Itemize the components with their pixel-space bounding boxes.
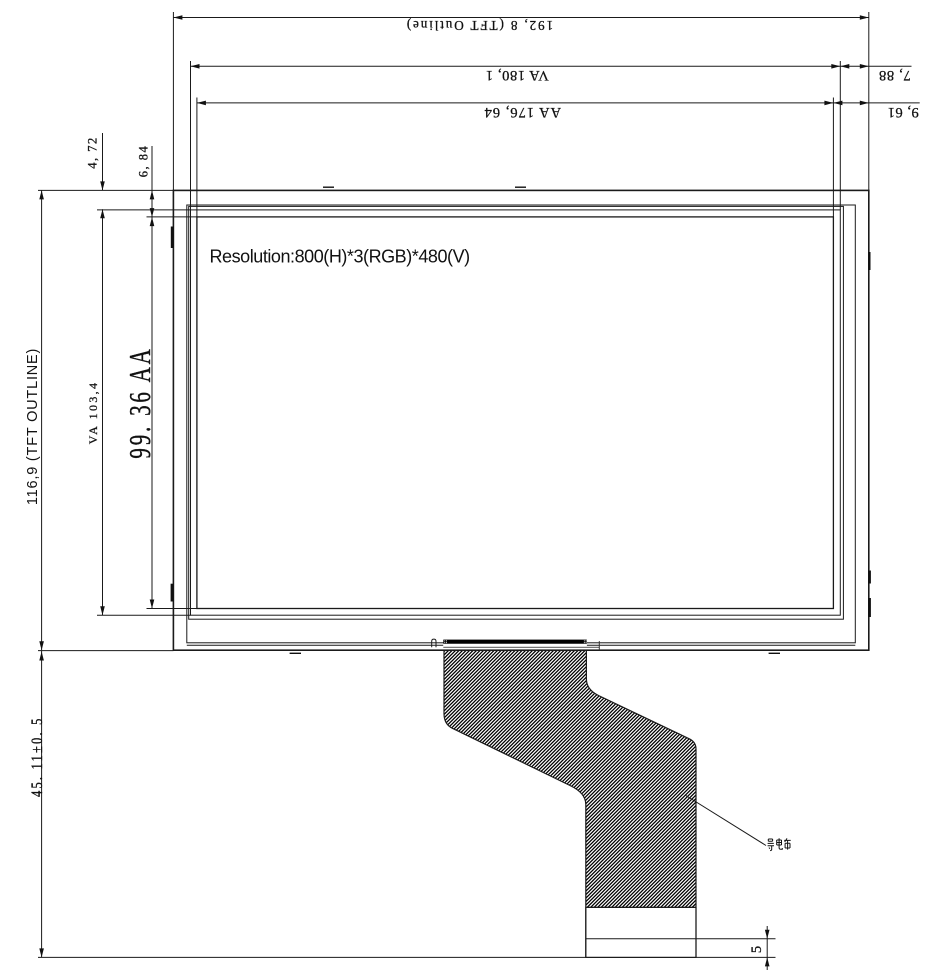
svg-text:6, 84: 6, 84 <box>136 145 150 178</box>
svg-text:VA 180, 1: VA 180, 1 <box>485 67 549 83</box>
svg-text:AA 176, 64: AA 176, 64 <box>484 104 561 120</box>
svg-text:45. 11±0. 5: 45. 11±0. 5 <box>29 716 47 797</box>
svg-text:7, 88: 7, 88 <box>878 67 911 83</box>
svg-text:116,9 (TFT OUTLINE): 116,9 (TFT OUTLINE) <box>25 348 41 505</box>
svg-text:VA 103,4: VA 103,4 <box>86 381 100 445</box>
svg-text:4, 72: 4, 72 <box>86 136 100 169</box>
svg-text:9, 61: 9, 61 <box>887 104 919 120</box>
svg-text:5: 5 <box>749 946 765 953</box>
svg-text:192, 8 (TFT Outline): 192, 8 (TFT Outline) <box>405 18 553 33</box>
svg-text:99. 36 AA: 99. 36 AA <box>122 346 157 458</box>
svg-text:Resolution:800(H)*3(RGB)*480(V: Resolution:800(H)*3(RGB)*480(V) <box>210 247 470 267</box>
